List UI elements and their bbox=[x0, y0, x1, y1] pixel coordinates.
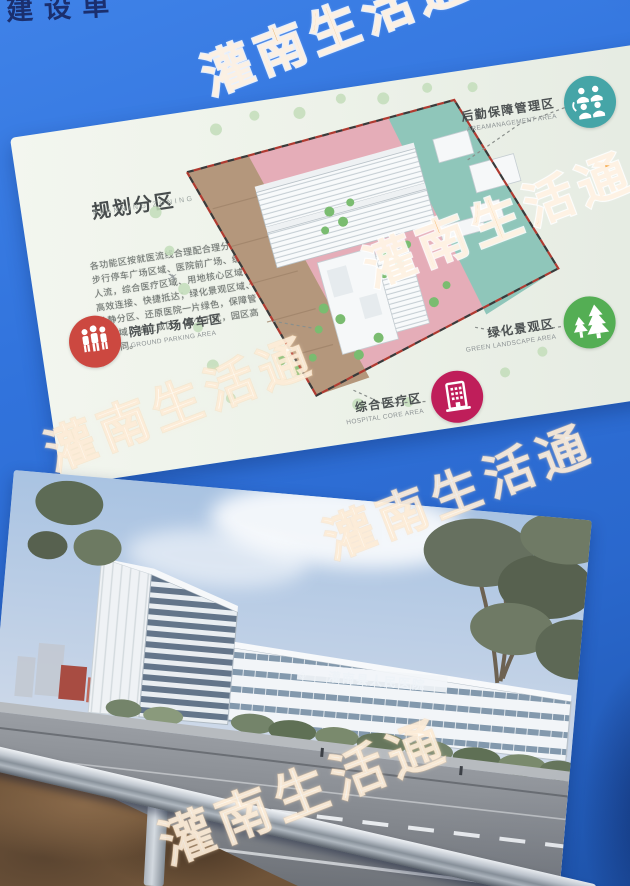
pine-trees-icon bbox=[560, 293, 619, 352]
sign-logo: ◇ bbox=[299, 670, 307, 681]
people-group-icon bbox=[560, 72, 619, 131]
people-icon bbox=[65, 312, 124, 371]
billboard-header-text: 建设单 bbox=[5, 0, 121, 28]
hospital-building-icon bbox=[428, 367, 487, 426]
plane-icon: ✈ bbox=[164, 268, 181, 287]
photo-of-planning-billboard: 建设单 规划分区 PLANNING ZONING 各功能区按就医流线合理配合理分… bbox=[0, 0, 630, 886]
corner-shadow bbox=[520, 586, 630, 886]
